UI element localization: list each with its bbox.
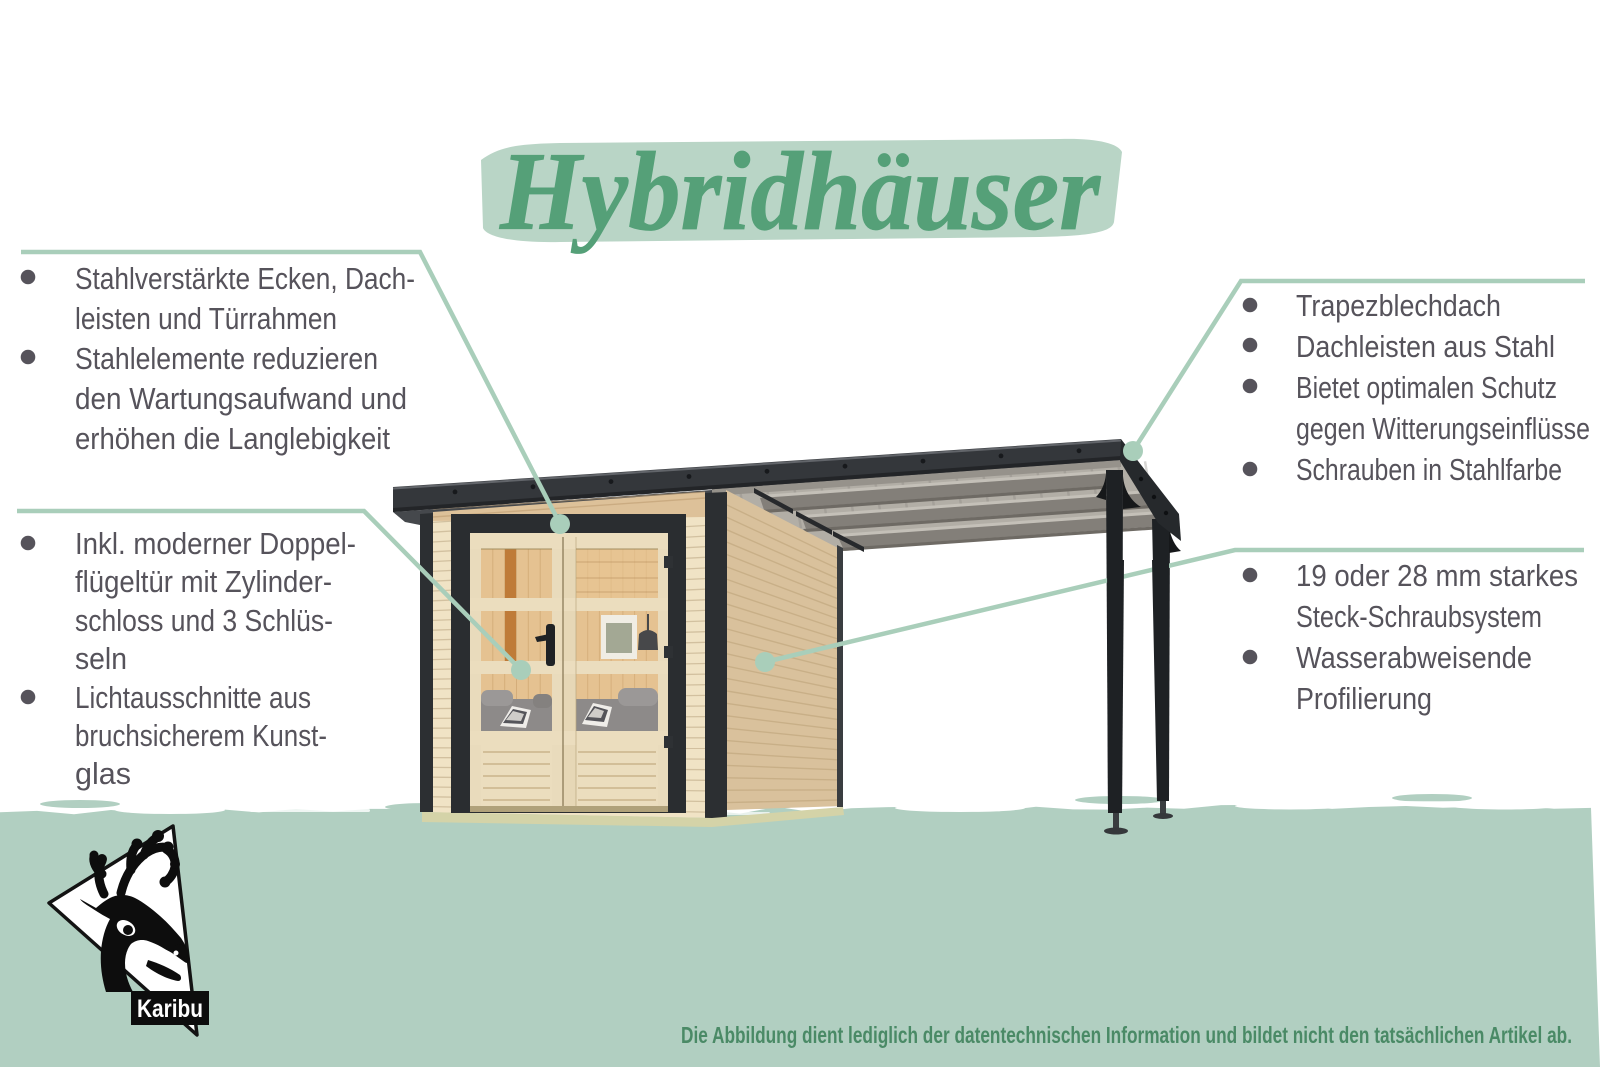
svg-text:schloss und 3 Schlüs-: schloss und 3 Schlüs- <box>75 603 333 638</box>
svg-text:Die Abbildung dient lediglich: Die Abbildung dient lediglich der datent… <box>681 1022 1572 1048</box>
svg-text:Stahlverstärkte Ecken, Dach-: Stahlverstärkte Ecken, Dach- <box>75 261 415 296</box>
svg-text:bruchsicherem Kunst-: bruchsicherem Kunst- <box>75 718 327 753</box>
svg-text:gegen Witterungseinflüsse: gegen Witterungseinflüsse <box>1296 411 1590 446</box>
svg-text:Schrauben in Stahlfarbe: Schrauben in Stahlfarbe <box>1296 452 1562 487</box>
svg-text:leisten und Türrahmen: leisten und Türrahmen <box>75 301 337 336</box>
svg-text:erhöhen die Langlebigkeit: erhöhen die Langlebigkeit <box>75 421 390 456</box>
svg-text:Trapezblechdach: Trapezblechdach <box>1296 288 1501 323</box>
svg-text:glas: glas <box>75 756 131 791</box>
svg-text:Karibu: Karibu <box>137 995 203 1023</box>
svg-text:Steck-Schraubsystem: Steck-Schraubsystem <box>1296 599 1542 634</box>
svg-text:Stahlelemente reduzieren: Stahlelemente reduzieren <box>75 341 378 376</box>
svg-text:Bietet optimalen Schutz: Bietet optimalen Schutz <box>1296 370 1557 405</box>
svg-text:den Wartungsaufwand und: den Wartungsaufwand und <box>75 381 407 416</box>
svg-text:flügeltür mit Zylinder-: flügeltür mit Zylinder- <box>75 564 332 599</box>
svg-text:Lichtausschnitte aus: Lichtausschnitte aus <box>75 680 311 715</box>
svg-text:Wasserabweisende: Wasserabweisende <box>1296 640 1532 675</box>
svg-text:19 oder 28 mm starkes: 19 oder 28 mm starkes <box>1296 558 1578 593</box>
svg-text:Inkl. moderner Doppel-: Inkl. moderner Doppel- <box>75 526 356 561</box>
svg-text:Dachleisten aus Stahl: Dachleisten aus Stahl <box>1296 329 1555 364</box>
svg-text:Hybridhäuser: Hybridhäuser <box>499 130 1101 254</box>
svg-text:Profilierung: Profilierung <box>1296 681 1432 716</box>
svg-text:seln: seln <box>75 641 127 676</box>
